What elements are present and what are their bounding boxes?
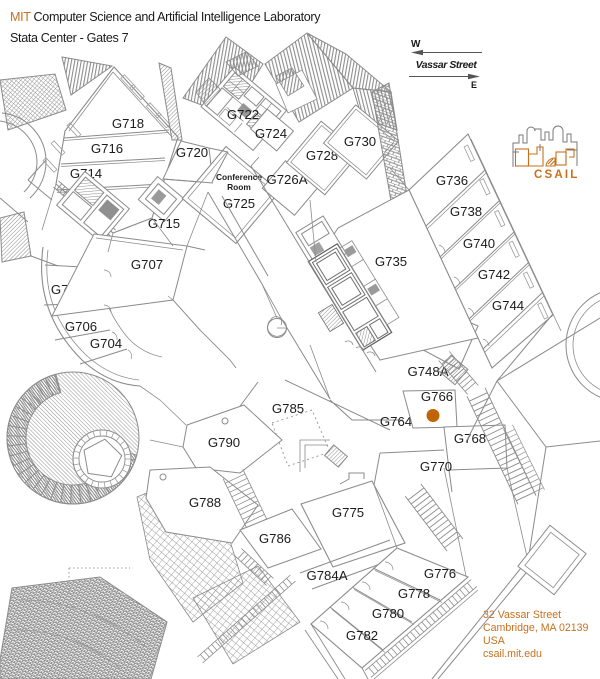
svg-text:Room: Room [227,182,251,192]
svg-text:G722: G722 [227,107,259,122]
svg-text:G780: G780 [372,606,404,621]
svg-text:G785: G785 [272,401,304,416]
svg-text:G770: G770 [420,459,452,474]
svg-text:G786: G786 [259,531,291,546]
svg-text:G715: G715 [148,216,180,231]
svg-text:W: W [411,39,421,50]
svg-text:G735: G735 [375,254,407,269]
svg-text:G738: G738 [450,204,482,219]
svg-text:G736: G736 [436,173,468,188]
svg-text:MIT Computer Science and Artif: MIT Computer Science and Artificial Inte… [10,10,321,24]
svg-text:G775: G775 [332,505,364,520]
svg-text:Vassar Street: Vassar Street [416,60,478,71]
svg-text:G707: G707 [131,257,163,272]
svg-text:G766: G766 [421,389,453,404]
svg-text:Cambridge, MA 02139: Cambridge, MA 02139 [483,622,589,634]
svg-text:G724: G724 [255,126,287,141]
svg-text:G720: G720 [176,145,208,160]
svg-text:G730: G730 [344,134,376,149]
svg-text:E: E [471,80,477,90]
svg-text:G740: G740 [463,236,495,251]
svg-text:Stata Center - Gates 7: Stata Center - Gates 7 [10,31,129,45]
svg-text:G784A: G784A [306,568,347,583]
svg-text:G725: G725 [223,196,255,211]
svg-text:G718: G718 [112,116,144,131]
svg-text:G788: G788 [189,495,221,510]
svg-text:CSAIL: CSAIL [534,169,580,181]
svg-text:G778: G778 [398,586,430,601]
svg-text:G716: G716 [91,141,123,156]
svg-text:G706: G706 [65,319,97,334]
svg-text:csail.mit.edu: csail.mit.edu [483,648,542,660]
svg-text:G776: G776 [424,566,456,581]
svg-text:G742: G742 [478,267,510,282]
svg-text:G764: G764 [380,414,412,429]
svg-text:G782: G782 [346,628,378,643]
svg-text:G790: G790 [208,435,240,450]
svg-text:G744: G744 [492,298,524,313]
svg-text:USA: USA [483,635,506,647]
